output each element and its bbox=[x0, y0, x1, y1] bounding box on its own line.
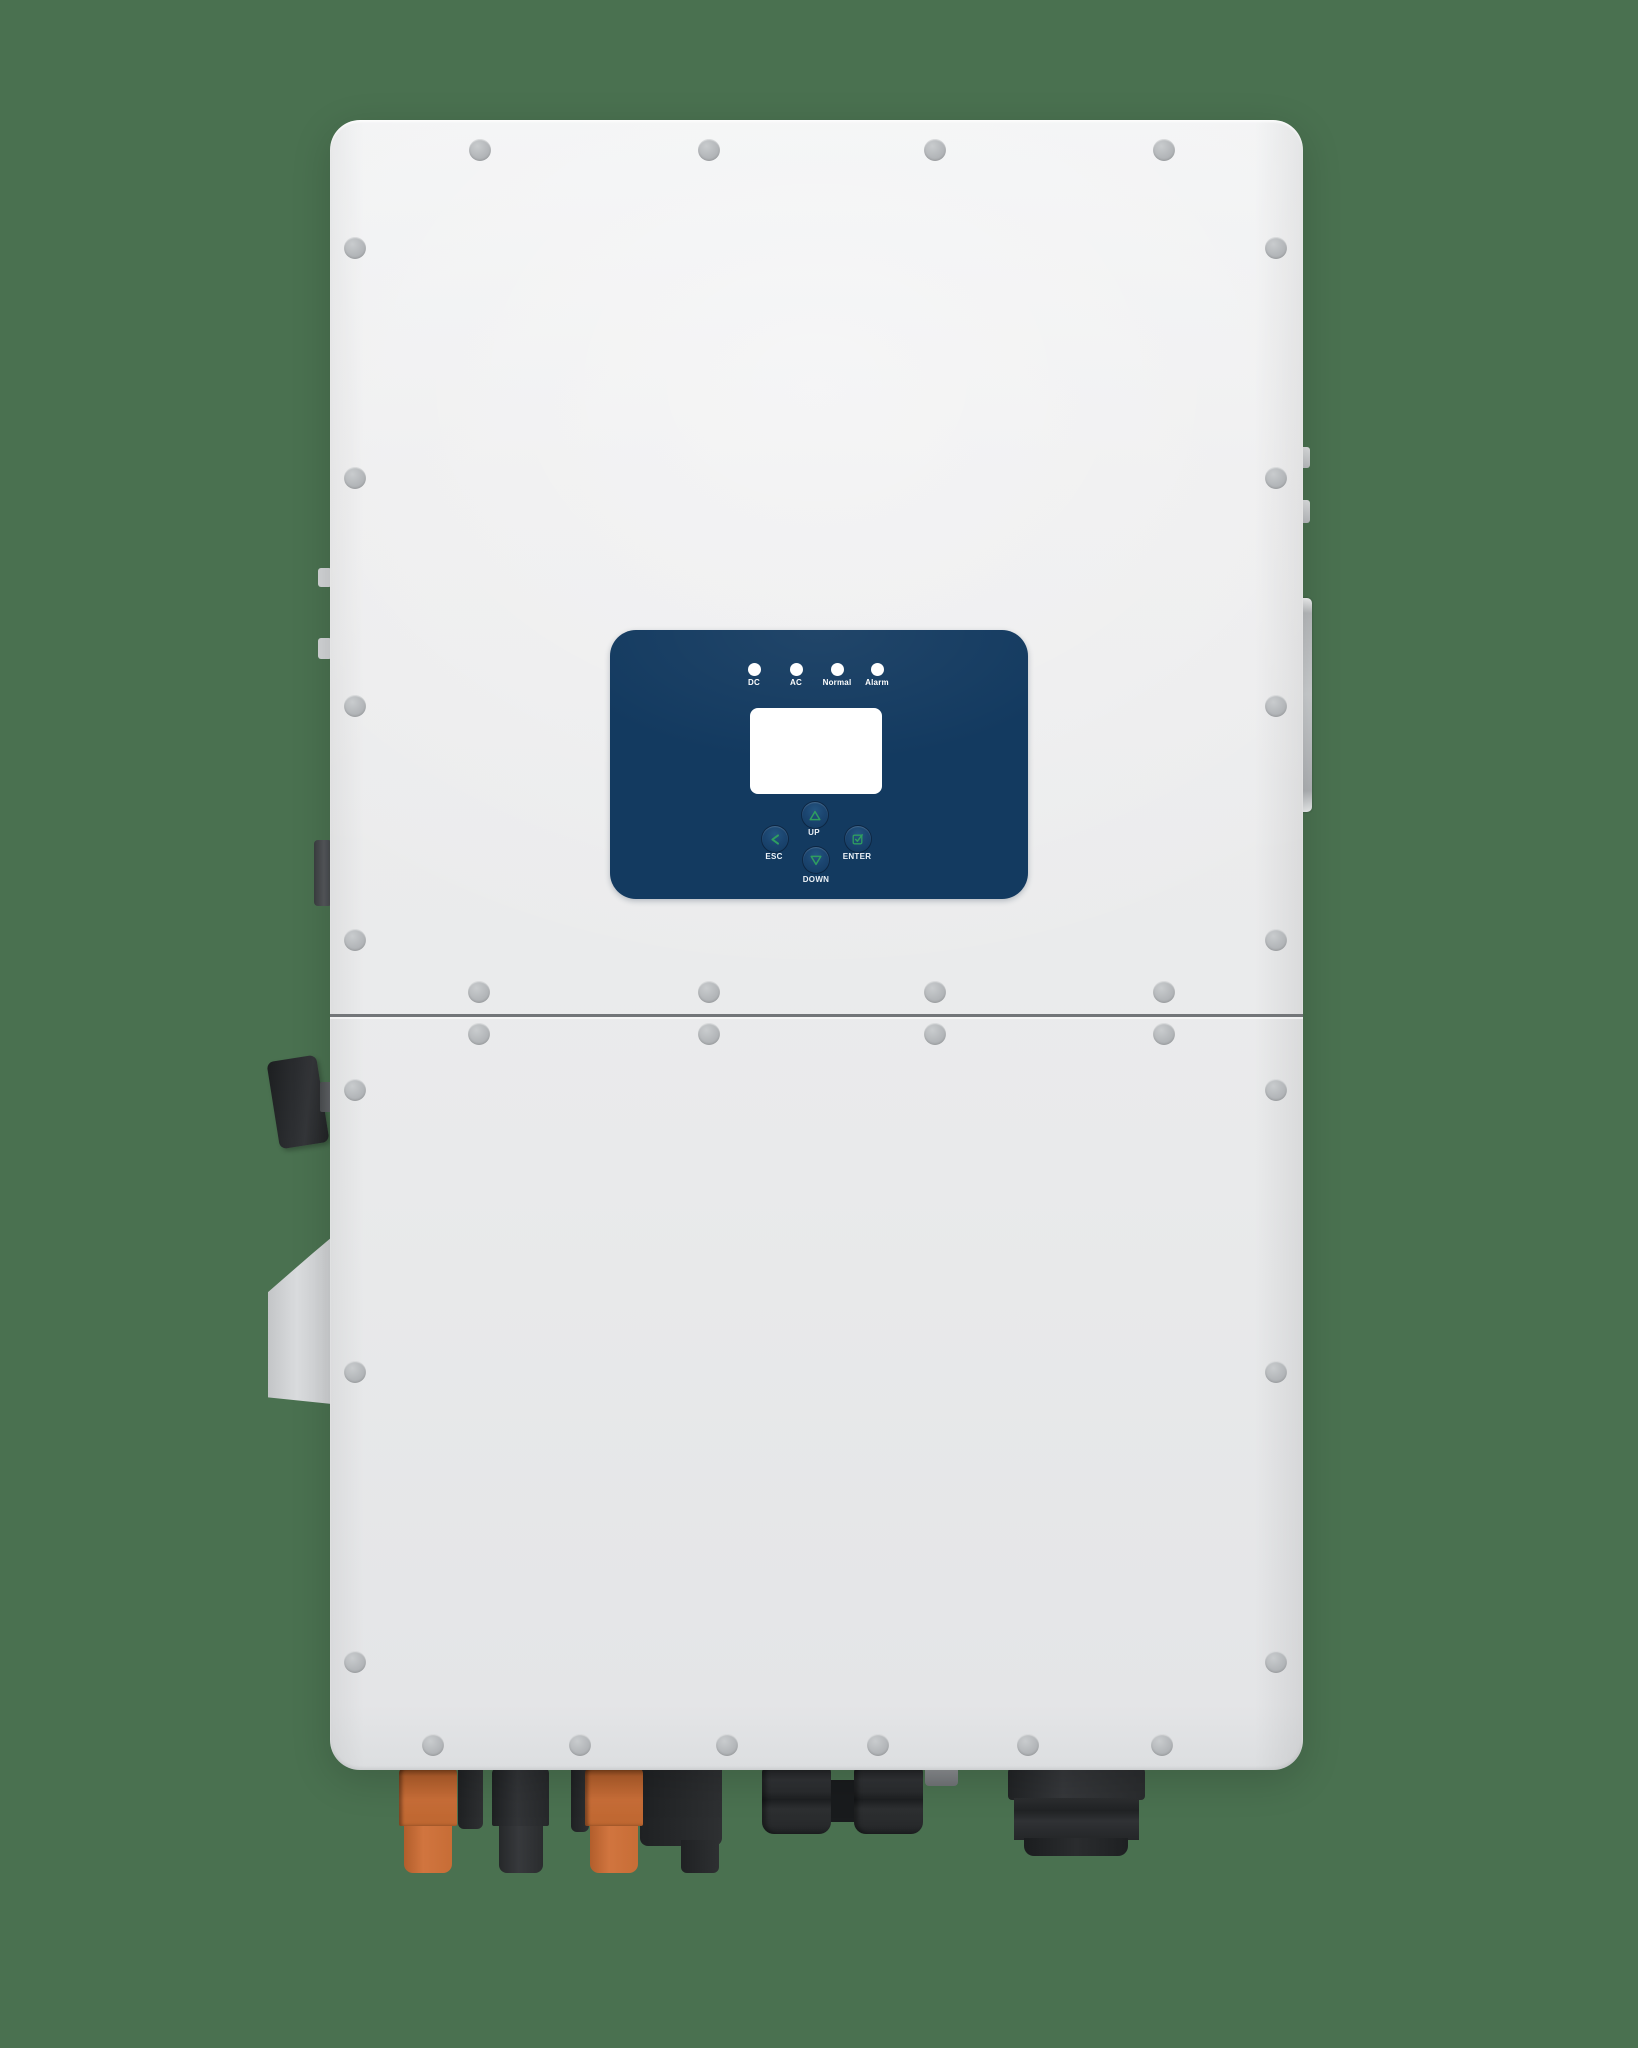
screw bbox=[468, 981, 490, 1003]
ac-cable-gland-nut bbox=[1024, 1838, 1128, 1856]
scene-background: DC AC Normal Alarm UP ESC ENTER bbox=[0, 0, 1638, 2048]
screw bbox=[1017, 1734, 1039, 1756]
dc-led bbox=[748, 663, 761, 676]
esc-button-label: ESC bbox=[765, 852, 782, 861]
check-square-icon bbox=[852, 833, 864, 845]
screw bbox=[468, 1023, 490, 1045]
mc4-connector-orange-1 bbox=[399, 1768, 457, 1873]
enter-button[interactable] bbox=[844, 825, 872, 853]
gland-plate bbox=[925, 1768, 958, 1786]
mc4-body bbox=[492, 1768, 549, 1826]
screw bbox=[469, 139, 491, 161]
mc4-nut bbox=[499, 1826, 543, 1873]
chevron-left-icon bbox=[770, 834, 780, 845]
mc4-body bbox=[585, 1768, 643, 1826]
up-button[interactable] bbox=[801, 801, 829, 829]
triangle-down-icon bbox=[810, 855, 822, 866]
screw bbox=[344, 695, 366, 717]
screw bbox=[344, 1361, 366, 1383]
normal-led bbox=[831, 663, 844, 676]
screw bbox=[344, 1079, 366, 1101]
ac-led bbox=[790, 663, 803, 676]
screw bbox=[1265, 929, 1287, 951]
screw bbox=[698, 1023, 720, 1045]
cable-gland-double-right bbox=[854, 1768, 923, 1834]
screw bbox=[1265, 1079, 1287, 1101]
screw bbox=[924, 1023, 946, 1045]
screw bbox=[344, 929, 366, 951]
screw bbox=[344, 237, 366, 259]
screw bbox=[924, 139, 946, 161]
screw bbox=[1265, 1651, 1287, 1673]
mc4-nut bbox=[681, 1840, 719, 1873]
down-button-label: DOWN bbox=[803, 875, 830, 884]
alarm-led bbox=[871, 663, 884, 676]
up-button-label: UP bbox=[808, 828, 820, 837]
lcd-display bbox=[750, 708, 882, 794]
screw bbox=[1265, 695, 1287, 717]
mc4-connector-black-1 bbox=[492, 1768, 549, 1873]
cable-gland-double-left bbox=[762, 1768, 831, 1834]
screw bbox=[1151, 1734, 1173, 1756]
down-button[interactable] bbox=[802, 846, 830, 874]
esc-button[interactable] bbox=[761, 825, 789, 853]
alarm-led-indicator: Alarm bbox=[847, 663, 907, 687]
mc4-nut bbox=[590, 1826, 638, 1873]
enter-button-label: ENTER bbox=[843, 852, 872, 861]
screw bbox=[344, 1651, 366, 1673]
ac-cable-gland-body bbox=[1014, 1798, 1139, 1840]
triangle-up-icon bbox=[809, 810, 821, 821]
screw bbox=[698, 139, 720, 161]
screw bbox=[1153, 139, 1175, 161]
screw bbox=[344, 467, 366, 489]
mc4-body bbox=[399, 1768, 457, 1826]
inverter-body bbox=[330, 120, 1303, 1770]
screw bbox=[716, 1734, 738, 1756]
screw bbox=[1153, 1023, 1175, 1045]
screw bbox=[1153, 981, 1175, 1003]
mc4-nut bbox=[404, 1826, 452, 1873]
alarm-led-label: Alarm bbox=[847, 678, 907, 687]
ac-cable-gland bbox=[1008, 1768, 1145, 1800]
mc4-connector-orange-2 bbox=[585, 1768, 643, 1873]
screw bbox=[422, 1734, 444, 1756]
enclosure-seam-highlight bbox=[330, 1017, 1303, 1019]
mc4-connector-black-2 bbox=[640, 1768, 722, 1846]
control-panel: DC AC Normal Alarm UP ESC ENTER bbox=[610, 630, 1028, 899]
screw bbox=[698, 981, 720, 1003]
screw bbox=[1265, 1361, 1287, 1383]
screw bbox=[924, 981, 946, 1003]
mounting-bracket bbox=[268, 1237, 332, 1404]
screw bbox=[867, 1734, 889, 1756]
screw bbox=[1265, 237, 1287, 259]
connector-stub bbox=[458, 1768, 483, 1829]
screw bbox=[569, 1734, 591, 1756]
screw bbox=[1265, 467, 1287, 489]
